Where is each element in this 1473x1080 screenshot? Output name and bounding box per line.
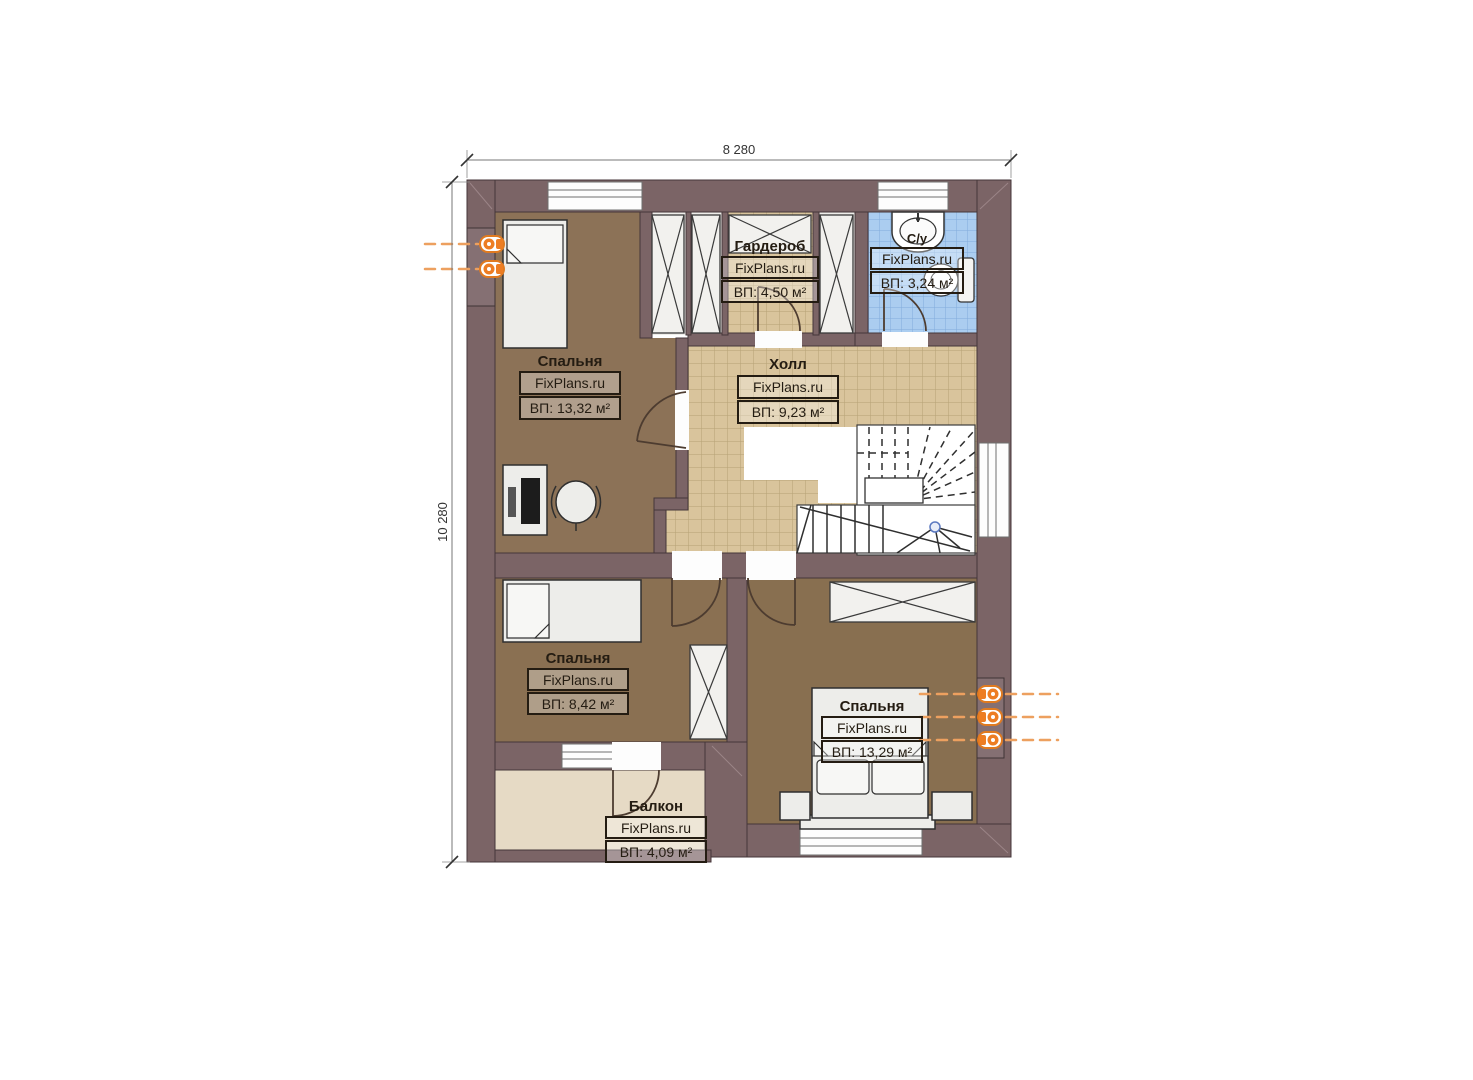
room-area: ВП: 13,32 м² xyxy=(530,400,611,416)
radiator-icon xyxy=(978,709,1002,725)
dimension-top: 8 280 xyxy=(461,142,1017,178)
window xyxy=(562,744,614,768)
room-name: С/у xyxy=(907,231,928,246)
wardrobe-icon xyxy=(692,215,720,333)
room-name: Спальня xyxy=(546,650,611,667)
room-name: Спальня xyxy=(840,698,905,715)
room-label-wardrobe: Гардероб FixPlans.ru ВП: 4,50 м² xyxy=(722,238,818,302)
room-name: Гардероб xyxy=(735,238,806,255)
room-area: ВП: 8,42 м² xyxy=(542,696,615,712)
window xyxy=(979,443,1009,537)
stair-marker xyxy=(930,522,940,532)
nightstand-icon xyxy=(932,792,972,820)
window xyxy=(878,182,948,210)
room-area: ВП: 9,23 м² xyxy=(752,404,825,420)
wardrobe-icon xyxy=(652,215,684,333)
brand-label: FixPlans.ru xyxy=(543,672,613,688)
floor-plan-canvas: Спальня FixPlans.ru ВП: 13,32 м² Гардеро… xyxy=(0,0,1473,1080)
brand-label: FixPlans.ru xyxy=(535,375,605,391)
dimension-left: 10 280 xyxy=(435,176,470,868)
brand-label: FixPlans.ru xyxy=(621,820,691,836)
wardrobe-icon xyxy=(690,645,727,739)
dimension-height-label: 10 280 xyxy=(435,502,450,542)
room-area: ВП: 13,29 м² xyxy=(832,744,913,760)
room-area: ВП: 3,24 м² xyxy=(881,275,954,291)
brand-label: FixPlans.ru xyxy=(753,379,823,395)
nightstand-icon xyxy=(780,792,810,820)
window xyxy=(548,182,642,210)
brand-label: FixPlans.ru xyxy=(735,260,805,276)
stair-landing xyxy=(865,478,923,503)
room-name: Спальня xyxy=(538,353,603,370)
dimension-width-label: 8 280 xyxy=(723,142,756,157)
wardrobe-icon xyxy=(820,215,853,333)
wardrobe-icon xyxy=(830,582,975,622)
desk-icon xyxy=(503,465,547,535)
floor-plan-page: Спальня FixPlans.ru ВП: 13,32 м² Гардеро… xyxy=(0,0,1473,1080)
room-name: Балкон xyxy=(629,798,683,815)
bed-icon xyxy=(503,580,641,642)
radiator-icon xyxy=(480,261,504,277)
room-area: ВП: 4,50 м² xyxy=(734,284,807,300)
stair-void xyxy=(744,427,872,480)
window xyxy=(800,826,922,855)
brand-label: FixPlans.ru xyxy=(882,251,952,267)
radiator-icon xyxy=(978,732,1002,748)
radiator-icon xyxy=(978,686,1002,702)
bed-icon xyxy=(503,220,567,348)
room-area: ВП: 4,09 м² xyxy=(620,844,693,860)
radiator-icon xyxy=(480,236,504,252)
brand-label: FixPlans.ru xyxy=(837,720,907,736)
room-name: Холл xyxy=(769,356,807,373)
